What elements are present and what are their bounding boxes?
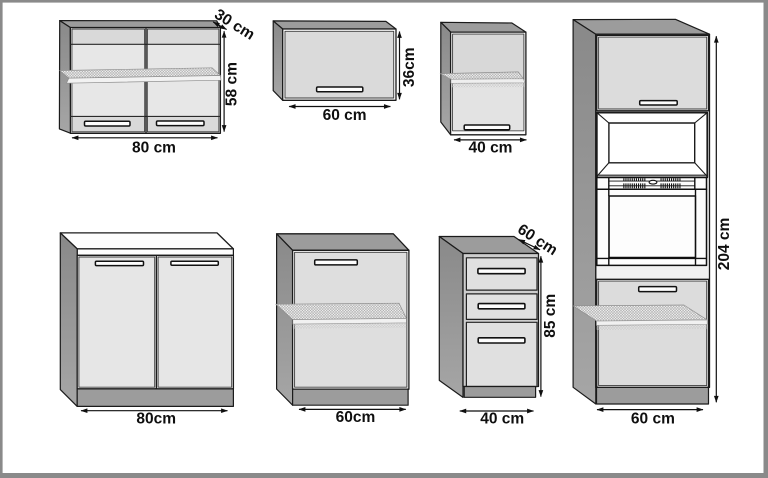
svg-text:204 cm: 204 cm [716, 218, 733, 271]
svg-text:60 cm: 60 cm [631, 411, 675, 428]
svg-text:58 cm: 58 cm [223, 62, 240, 106]
svg-text:36cm: 36cm [401, 47, 418, 87]
svg-text:60 cm: 60 cm [323, 107, 367, 124]
svg-text:40 cm: 40 cm [469, 139, 513, 156]
svg-text:80cm: 80cm [136, 410, 176, 427]
svg-text:85 cm: 85 cm [542, 294, 559, 338]
svg-text:80 cm: 80 cm [132, 139, 176, 156]
svg-text:40 cm: 40 cm [480, 411, 524, 428]
svg-text:60cm: 60cm [336, 409, 376, 426]
